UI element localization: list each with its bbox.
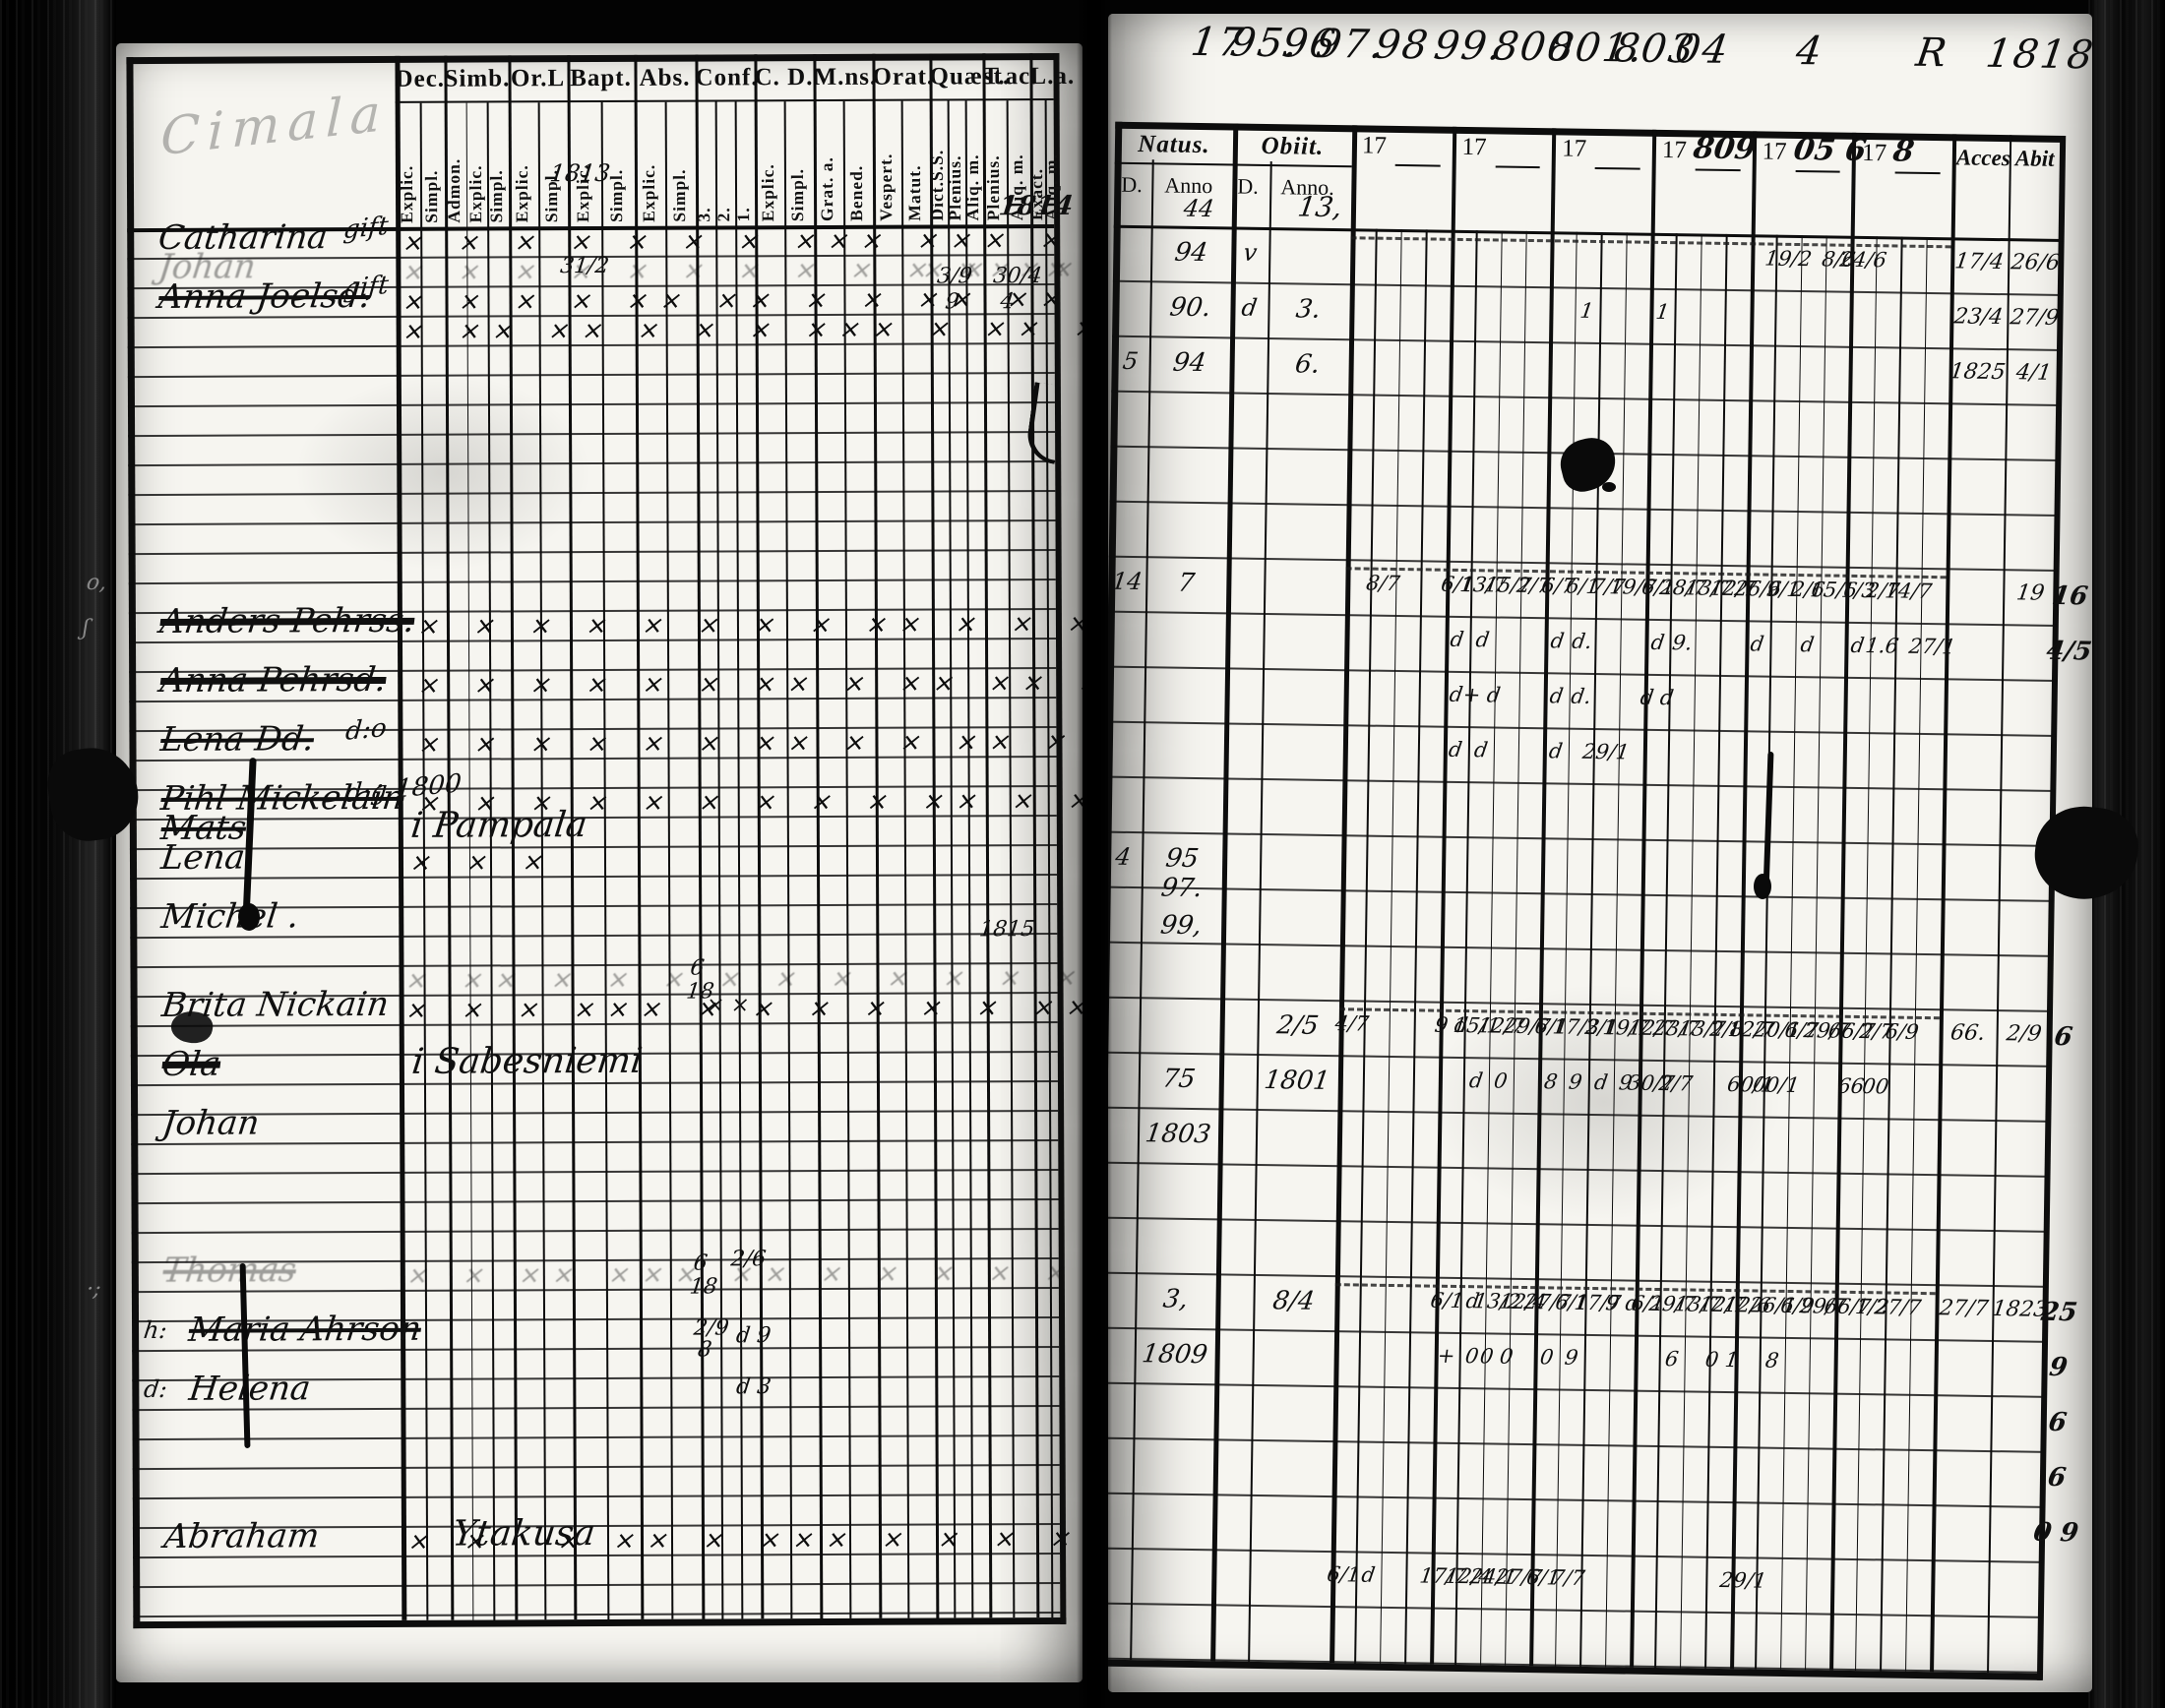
date-entry: 0 0 xyxy=(1479,1344,1515,1368)
date-entry: 6/9 xyxy=(1884,1019,1920,1043)
grid-line-v xyxy=(1829,133,1856,1671)
date-entry: 6 xyxy=(1664,1347,1681,1371)
margin-note: 6 xyxy=(2046,1463,2068,1493)
date-entry: 29/1 xyxy=(1719,1568,1768,1593)
entry-name: Thomas xyxy=(160,1250,298,1291)
date-entry: d xyxy=(1472,738,1489,762)
column-sublabel: Simpl. xyxy=(488,106,509,222)
grid-line-h xyxy=(133,1434,1060,1440)
obiit-year: 1801 xyxy=(1263,1066,1331,1096)
column-sublabel: Explic. xyxy=(760,105,780,221)
grid-line-h xyxy=(1108,1327,2047,1343)
entry-annotation: 2/6 xyxy=(729,1247,767,1271)
grid-line-h xyxy=(1595,167,1640,170)
entry-name-prefix: d: xyxy=(143,1375,169,1403)
date-entry: 0 xyxy=(1463,1344,1480,1368)
grid-line-v xyxy=(126,57,140,1628)
natus-year: 1803 xyxy=(1144,1119,1212,1149)
entry-marks: × × × × × × ×× × ×× ×× × × xyxy=(416,667,1082,700)
grid-line-v xyxy=(1630,130,1656,1668)
entry-marks: × ×× ×× × × × ××× × ×× ×0 xyxy=(401,314,1082,346)
entry-marks: × × × × × × ×× × × ×× × × xyxy=(416,727,1082,760)
grid-line-h xyxy=(1108,1548,2044,1563)
grid-line-h xyxy=(1108,666,2057,682)
grid-line-h xyxy=(1895,171,1941,174)
margin-note: 0 9 xyxy=(2031,1518,2079,1549)
grid-line-h xyxy=(1108,721,2056,737)
entry-marks: × × × × × × × × ×× × × × ×× xyxy=(416,608,1082,640)
natus-day: 14 xyxy=(1110,568,1144,595)
grid-line-h xyxy=(1111,391,2061,406)
natus-year: 95 xyxy=(1164,844,1201,874)
date-entry: 27/1 xyxy=(1908,635,1957,659)
entry-marks: × ×× × ××× × × × × × × xyxy=(555,1523,1082,1555)
entry-marks: × × × × × × × ××× ××× × ×× xyxy=(400,224,1082,257)
natus-header-script: 44 xyxy=(1182,195,1215,222)
obiit-year: 8/4 xyxy=(1271,1286,1317,1316)
grid-line-h xyxy=(132,1198,1059,1204)
grid-line-h xyxy=(1110,501,2060,517)
column-header: Dec. xyxy=(395,66,444,97)
grid-line-h xyxy=(131,1139,1058,1145)
entry-place-note: i Pampala xyxy=(408,805,589,846)
entry-name: Lena xyxy=(159,838,248,878)
column-header: Orat. xyxy=(872,64,929,95)
abit-entry: 4/1 xyxy=(2014,360,2053,385)
natus-year: 99, xyxy=(1158,911,1203,942)
years-script: 1818 xyxy=(1983,31,2092,79)
column-header: Bapt. xyxy=(567,65,634,96)
years-script: 4 xyxy=(1793,29,1826,74)
years-script: 04 xyxy=(1672,27,1732,73)
margin-note: 6 xyxy=(2047,1408,2069,1437)
date-entry: 27/7 xyxy=(1873,1295,1922,1319)
grid-line-h xyxy=(1108,776,2055,792)
grid-line-h xyxy=(128,401,1055,407)
entry-annotation: 18 xyxy=(689,1274,719,1299)
grid-line-h xyxy=(1109,556,2059,572)
obiit-header: Obiit. xyxy=(1233,132,1352,161)
column-sublabel: Explic. xyxy=(398,107,418,223)
grid-line-v xyxy=(1730,131,1757,1669)
obiit-header-script: 13, xyxy=(1296,191,1344,224)
date-entry: 8 xyxy=(1763,1349,1780,1372)
date-entry: 6/1 xyxy=(1326,1562,1362,1586)
date-entry: 7/7 xyxy=(1550,1565,1586,1589)
abit-entry: 26/6 xyxy=(2010,250,2062,275)
date-entry: d xyxy=(1849,634,1866,657)
grid-line-v xyxy=(1210,123,1238,1661)
margin-note: 4/5 xyxy=(2045,637,2092,667)
entry-name-prefix: h: xyxy=(142,1316,168,1344)
acces-entry: 27/7 xyxy=(1938,1296,1990,1321)
entry-annotation: d 9 xyxy=(735,1323,773,1348)
entry-marks: × × × × ×× ×× × × ×× ×× ×× xyxy=(400,283,1082,316)
column-sublabel: Simpl. xyxy=(422,107,443,223)
pen-stroke-blob xyxy=(1754,874,1771,899)
entry-annotation: 31/2 xyxy=(559,254,610,278)
grid-line-h xyxy=(1108,1493,2045,1508)
grid-line-h xyxy=(1108,886,2054,902)
grid-line-h xyxy=(133,1617,1066,1628)
grid-line-h xyxy=(133,1494,1060,1499)
grid-line-v xyxy=(1529,128,1556,1666)
acces-header: Acces xyxy=(1956,145,2010,171)
natus-year: 75 xyxy=(1160,1065,1197,1094)
year-header-script: 05 6 xyxy=(1791,133,1868,168)
date-entry: 1 xyxy=(1579,299,1596,323)
natus-year: 97. xyxy=(1159,874,1204,904)
grid-line-h xyxy=(131,1169,1058,1175)
column-sublabel: 1. xyxy=(735,105,756,221)
grid-line-h xyxy=(1395,164,1441,167)
column-sublabel: Admon. xyxy=(445,107,465,223)
page-stain xyxy=(1427,984,1781,1220)
grid-line-h xyxy=(131,1110,1058,1116)
column-sublabel: Aliq. m. xyxy=(964,104,985,220)
date-entry: d xyxy=(1360,1563,1377,1587)
grid-line-h xyxy=(128,431,1055,437)
column-sublabel: Simpl. xyxy=(789,105,810,221)
date-entry: d xyxy=(1548,739,1565,762)
binding-texture xyxy=(0,0,116,1708)
year-header-script: 8 xyxy=(1891,134,1917,168)
natus-year: 1809 xyxy=(1141,1339,1209,1370)
grid-line-h xyxy=(128,372,1055,378)
obiit-day: d xyxy=(1240,294,1259,322)
column-header: M.ns. xyxy=(813,64,872,95)
date-entry: d xyxy=(1649,631,1666,654)
obiit-year: 3. xyxy=(1294,294,1323,324)
grid-line-h xyxy=(1108,831,2055,847)
grid-line-h xyxy=(1495,165,1540,168)
natus-year: 90. xyxy=(1168,293,1212,324)
date-entry: 0 xyxy=(1538,1345,1555,1369)
acces-entry: 1825 xyxy=(1948,359,2007,385)
grid-line-h xyxy=(128,490,1055,496)
date-entry: d. xyxy=(1571,630,1593,653)
grid-line-h xyxy=(133,1612,1060,1617)
natus-day: 5 xyxy=(1121,347,1140,375)
column-sublabel: Vespert. xyxy=(877,105,897,221)
date-entry: d xyxy=(1448,738,1464,762)
column-sublabel: Explic. xyxy=(514,106,534,222)
year-header: 17 xyxy=(1662,137,1687,164)
grid-line-v xyxy=(1430,127,1456,1665)
column-sublabel: 3. xyxy=(696,105,716,221)
natus-year: 94 xyxy=(1173,238,1209,268)
years-script: R xyxy=(1913,30,1950,76)
abit-entry: 27/9 xyxy=(2009,305,2061,331)
date-entry: d xyxy=(1450,628,1466,651)
obiit-year: 6. xyxy=(1293,349,1322,379)
natus-year: 3, xyxy=(1161,1285,1190,1314)
year-header: 17 xyxy=(1562,135,1586,162)
years-script: 98 xyxy=(1372,23,1432,69)
column-sublabel: 2. xyxy=(715,105,736,221)
entry-annotation: 1815 xyxy=(978,917,1036,942)
margin-scribble: ·; xyxy=(85,1277,101,1302)
column-header: T.ac. xyxy=(982,63,1029,94)
entry-name: Helena xyxy=(187,1369,313,1409)
date-entry: 14/7 xyxy=(1884,579,1933,603)
grid-line-h xyxy=(132,1228,1059,1234)
abit-entry: 2/9 xyxy=(2005,1021,2043,1046)
grid-line-h xyxy=(1108,1272,2048,1288)
entry-name: Abraham xyxy=(162,1516,322,1556)
date-entry: d xyxy=(1548,684,1565,707)
entry-marks: × × xyxy=(405,1526,502,1555)
entry-marks: × × × xyxy=(407,847,560,878)
year-header: 17 xyxy=(1762,138,1786,165)
date-entry: 0 1 xyxy=(1703,1348,1740,1372)
grid-line-h xyxy=(126,53,1059,64)
natus-year: 7 xyxy=(1176,569,1197,598)
date-entry: 9 xyxy=(1564,1346,1580,1370)
grid-line-h xyxy=(130,874,1057,880)
date-entry: + xyxy=(1437,1344,1457,1368)
date-entry: 8/7 xyxy=(1365,572,1401,595)
entry-annotation: 9 xyxy=(944,289,960,314)
margin-note: 6 xyxy=(2053,1022,2074,1052)
page-stain xyxy=(295,374,590,571)
entry-annotation: 8 xyxy=(697,1337,713,1362)
column-header: Or.L xyxy=(508,65,567,96)
entry-annotation: d 3 xyxy=(735,1374,773,1399)
grid-line-h xyxy=(133,1582,1060,1588)
pen-stroke-blob xyxy=(238,903,260,931)
grid-line-h xyxy=(1696,168,1741,171)
column-header: L.a. xyxy=(1029,63,1059,94)
entry-name: Anna Pehrsd. xyxy=(158,660,389,701)
obiit-year: 2/5 xyxy=(1275,1010,1321,1041)
book-gutter xyxy=(1077,0,1112,1708)
date-entry: 1.6 xyxy=(1865,634,1901,657)
grid-line-h xyxy=(1108,942,2053,957)
grid-line-v xyxy=(1130,159,1154,1660)
acces-entry: 17/4 xyxy=(1953,249,2006,274)
column-sublabel: Explic. xyxy=(466,106,487,222)
date-entry: + d xyxy=(1461,683,1502,707)
date-entry: d xyxy=(1799,633,1816,656)
margin-note: 25 xyxy=(2039,1298,2078,1327)
entry-place-note: i Sabesniemi xyxy=(409,1041,644,1082)
date-entry: 9. xyxy=(1671,631,1694,654)
column-header: Conf. xyxy=(695,64,754,95)
obiit-day: v xyxy=(1242,239,1259,267)
date-entry: 29/1 xyxy=(1581,740,1631,764)
column-sublabel: Bened. xyxy=(848,105,869,221)
date-entry: 4/7 xyxy=(1333,1011,1370,1035)
date-entry: 1 xyxy=(1654,300,1671,324)
grid-line-h xyxy=(1108,611,2058,627)
natus-header: Natus. xyxy=(1115,131,1233,160)
entry-name: Michel . xyxy=(159,896,301,937)
column-header: Abs. xyxy=(634,65,695,96)
year-header: 17 xyxy=(1362,132,1387,159)
abit-entry: 19 xyxy=(2015,580,2046,605)
date-entry: 6/1 xyxy=(1429,1289,1465,1312)
grid-line-v xyxy=(395,56,406,1620)
date-entry: d xyxy=(1549,629,1566,652)
ink-blot-satellite xyxy=(1602,482,1616,492)
grid-line-h xyxy=(130,844,1057,850)
grid-line-h xyxy=(1795,170,1840,173)
grid-line-h xyxy=(396,98,1054,103)
margin-note: 16 xyxy=(2050,581,2089,611)
date-entry: 19/2 xyxy=(1763,247,1813,272)
book-edge-left xyxy=(0,0,116,1708)
date-entry: d xyxy=(1474,628,1491,651)
grid-line-h xyxy=(1112,335,2062,351)
column-sublabel: Explic. xyxy=(640,106,660,222)
acces-entry: 66. xyxy=(1948,1020,1986,1045)
entry-script-note: gift xyxy=(341,212,389,245)
grid-line-h xyxy=(1108,1437,2045,1453)
grid-line-h xyxy=(128,460,1055,466)
grid-line-h xyxy=(129,579,1056,584)
date-entry: 00 xyxy=(1861,1074,1890,1098)
year-header: 17 xyxy=(1461,134,1486,161)
grid-line-h xyxy=(1108,1382,2046,1398)
entry-name: Ola xyxy=(160,1045,223,1084)
grid-line-v xyxy=(1248,161,1272,1662)
natus-year: 94 xyxy=(1171,348,1207,378)
grid-line-h xyxy=(1108,1217,2049,1233)
left-page: Cimala Dec.Explic.Simpl.Simb.Admon.Expli… xyxy=(116,43,1082,1682)
natus-day-label: D. xyxy=(1121,172,1143,198)
margin-note: 9 xyxy=(2048,1353,2070,1382)
right-page-sheet: 1795.9697.9899.800801.803044R1818Natus.O… xyxy=(1108,14,2092,1692)
entry-script-note: d:o xyxy=(344,713,388,747)
entry-name: Lena Dd. xyxy=(158,719,316,760)
header-annotation: 1814 15 xyxy=(997,191,1082,222)
margin-scribble: o, xyxy=(85,571,107,595)
left-page-sheet: Cimala Dec.Explic.Simpl.Simb.Admon.Expli… xyxy=(116,43,1082,1682)
date-entry: 24/6 xyxy=(1838,248,1887,273)
entry-annotation: × × xyxy=(705,993,751,1017)
column-header: Simb. xyxy=(444,65,508,96)
natus-day: 4 xyxy=(1114,843,1133,871)
entry-name: Anders Pehrss. xyxy=(158,601,417,641)
column-header: Quæst. xyxy=(929,63,982,94)
column-sublabel: Matut. xyxy=(905,105,926,221)
entry-name: Anna Joelsd. xyxy=(156,276,372,317)
acces-entry: 23/4 xyxy=(1952,304,2005,330)
entry-name: Maria Ahrson xyxy=(187,1310,424,1350)
entry-marks: × ×× × × × × × × × × × × × xyxy=(402,963,1082,996)
column-sublabel: Simpl. xyxy=(670,106,691,222)
column-header: C. D. xyxy=(754,64,813,95)
right-page: 1795.9697.9899.800801.803044R1818Natus.O… xyxy=(1108,14,2092,1692)
date-entry: d. xyxy=(1570,685,1592,708)
grid-line-h xyxy=(128,519,1055,525)
obiit-day-label: D. xyxy=(1237,174,1259,200)
date-entry: d d xyxy=(1639,686,1675,709)
abit-header: Abit xyxy=(2015,146,2055,172)
grid-line-h xyxy=(133,1464,1060,1470)
column-sublabel: Grat. a. xyxy=(819,105,839,221)
parish-title-script: Cimala xyxy=(159,84,389,168)
grid-line-v xyxy=(1330,125,1357,1663)
date-entry: d xyxy=(1750,632,1766,655)
entry-name: Johan xyxy=(160,1104,262,1143)
grid-line-h xyxy=(129,549,1056,555)
entry-script-note: gift xyxy=(342,271,390,304)
header-annotation: 1813 xyxy=(548,159,611,187)
year-header-script: 809 xyxy=(1692,131,1758,166)
